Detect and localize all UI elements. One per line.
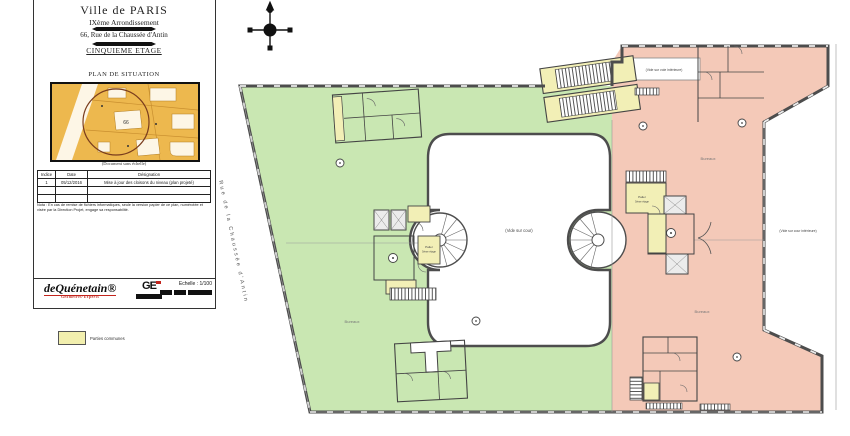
drawing-sheet: Rue de la Chaussée d'Antin (Vide sur cou… [0, 0, 850, 436]
partner-logo-bar [136, 294, 162, 299]
surveyor-logo-subtitle: Géomètres-Experts [44, 295, 116, 300]
arrondissement: IXème Arrondissement [33, 18, 215, 27]
rev-header-indice: Indice [38, 171, 56, 179]
parcel-number: 66 [123, 120, 129, 126]
situation-map: 66 [50, 82, 200, 162]
table-row: 1 05/12/2016 Mise à jour des cloisons du… [38, 179, 211, 187]
scale-bar [160, 290, 212, 295]
scale-box: Echelle : 1/100 [160, 281, 212, 295]
right-landing-sub: 5ème étage [635, 200, 649, 204]
legend-swatch-common-parts [58, 331, 86, 345]
floor-title: CINQUIEME ETAGE [33, 46, 215, 55]
scale-label: Echelle : 1/100 [160, 281, 212, 287]
table-row [38, 187, 211, 195]
frame-line-logos-bottom [33, 308, 215, 309]
revision-table: Indice Date Désignation 1 05/12/2016 Mis… [37, 170, 211, 203]
void-top-label: (Vide sur voie intérieure) [646, 68, 683, 72]
pink-zone-bottom-label: Bureaux [695, 309, 710, 314]
nota-text: Nota : En cas de remise de fichiers info… [37, 203, 211, 213]
street-label: Rue de la Chaussée d'Antin [217, 180, 249, 304]
rev-date: 05/12/2016 [56, 179, 88, 187]
pink-zone-top-label: Bureaux [701, 156, 716, 161]
courtyard-label: (Vide sur cour) [505, 228, 533, 233]
rev-designation: Mise à jour des cloisons du niveau (plan… [88, 179, 211, 187]
spiral-stair-right [570, 212, 626, 268]
table-row [38, 195, 211, 203]
left-landing-label: Palier [425, 245, 433, 249]
north-arrow-icon [248, 2, 292, 50]
situation-caption: (Document sans échelle) [33, 161, 215, 166]
frame-line-right [215, 0, 216, 309]
title-block: Ville de PARIS IXème Arrondissement 66, … [0, 0, 216, 436]
right-landing-label: Palier [638, 195, 646, 199]
address: 66, Rue de la Chaussée d'Antin [33, 31, 215, 39]
legend: Parties communes [58, 331, 125, 345]
green-zone-label: Bureaux [345, 319, 360, 324]
surveyor-logo-text: deQuénetain® [44, 281, 116, 295]
situation-title: PLAN DE SITUATION [33, 71, 215, 78]
rev-header-date: Date [56, 171, 88, 179]
legend-label: Parties communes [90, 336, 125, 341]
left-landing-sub: 5ème étage [422, 250, 436, 254]
partner-logo: GE [136, 281, 162, 299]
frame-line-logos-top [33, 278, 215, 279]
void-right-label: (Vide sur cour intérieure) [779, 229, 816, 233]
surveyor-logo: deQuénetain® Géomètres-Experts [44, 282, 116, 300]
rev-header-designation: Désignation [88, 171, 211, 179]
rev-indice: 1 [38, 179, 56, 187]
commune-title: Ville de PARIS [33, 3, 215, 18]
